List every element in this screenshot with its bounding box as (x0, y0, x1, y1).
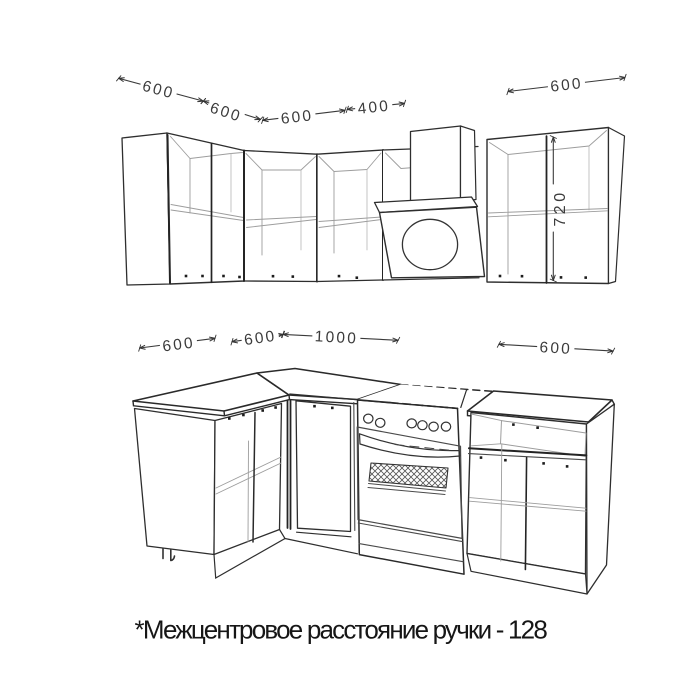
svg-text:400: 400 (357, 98, 391, 118)
svg-text:720: 720 (552, 189, 569, 226)
svg-text:*Межцентровое расстояние ручки: *Межцентровое расстояние ручки - 128 (135, 615, 548, 645)
svg-text:1000: 1000 (314, 328, 358, 347)
svg-text:600: 600 (539, 339, 572, 358)
